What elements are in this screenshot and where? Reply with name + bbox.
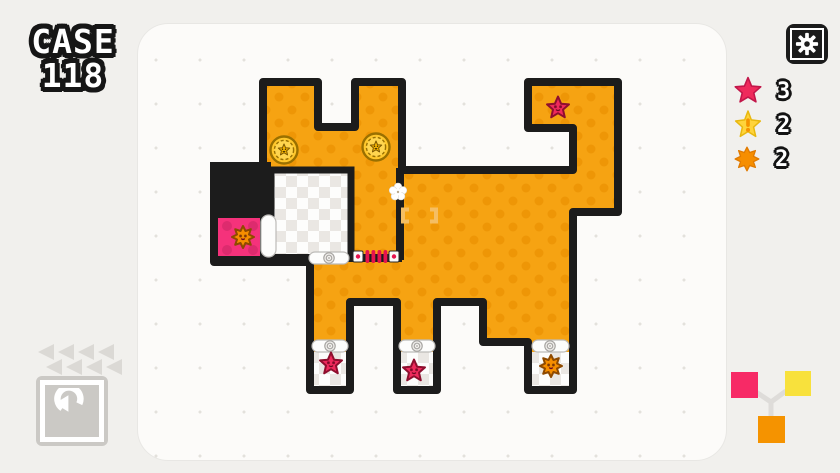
roller-chest[interactable] <box>309 252 349 264</box>
legend-count-yellow-flower: 2 <box>777 113 790 138</box>
yellow-alert-flower-icon <box>733 110 763 140</box>
roller-middle-leg[interactable] <box>399 340 435 352</box>
black-block <box>210 162 271 218</box>
legend-row-yellow-flower: 2 <box>733 110 825 140</box>
orange-sun-flower <box>232 226 254 248</box>
legend-count-orange-sun: 2 <box>775 147 788 172</box>
case-title: CASE 118 <box>6 26 140 92</box>
color-mix-diagram <box>728 366 818 450</box>
orange-sun-flower-icon <box>733 145 761 173</box>
lion-badge-2[interactable] <box>363 134 390 161</box>
pink-cell[interactable] <box>215 215 264 260</box>
case-title-word: CASE <box>6 26 140 57</box>
flower-legend: 3 2 2 <box>733 76 825 178</box>
mix-pink-square <box>731 372 758 398</box>
case-number: 118 <box>6 60 140 91</box>
legend-row-red-star: 3 <box>733 76 825 106</box>
roller-left-leg[interactable] <box>312 340 348 352</box>
legend-row-orange-sun: 2 <box>733 144 825 174</box>
lion-badge-1[interactable] <box>271 137 298 164</box>
settings-button-frame <box>790 28 824 60</box>
mix-orange-square <box>758 416 785 443</box>
mix-connector-lines <box>756 391 786 418</box>
roller-hind-leg[interactable] <box>532 340 569 352</box>
orange-sun-flower-hind-leg[interactable] <box>540 355 562 377</box>
undo-arrow-icon <box>49 388 95 434</box>
gear-icon <box>795 32 819 56</box>
roller-vertical[interactable] <box>261 215 276 257</box>
undo-button[interactable] <box>36 376 108 446</box>
settings-button[interactable] <box>786 24 828 64</box>
dog-board[interactable] <box>200 68 632 402</box>
rewind-arrows <box>33 340 133 380</box>
undo-button-frame <box>40 380 104 442</box>
checker-room[interactable] <box>271 170 351 258</box>
legend-count-red-star: 3 <box>777 79 790 104</box>
red-star-flower-icon <box>733 76 763 106</box>
mix-yellow-square <box>785 371 811 396</box>
